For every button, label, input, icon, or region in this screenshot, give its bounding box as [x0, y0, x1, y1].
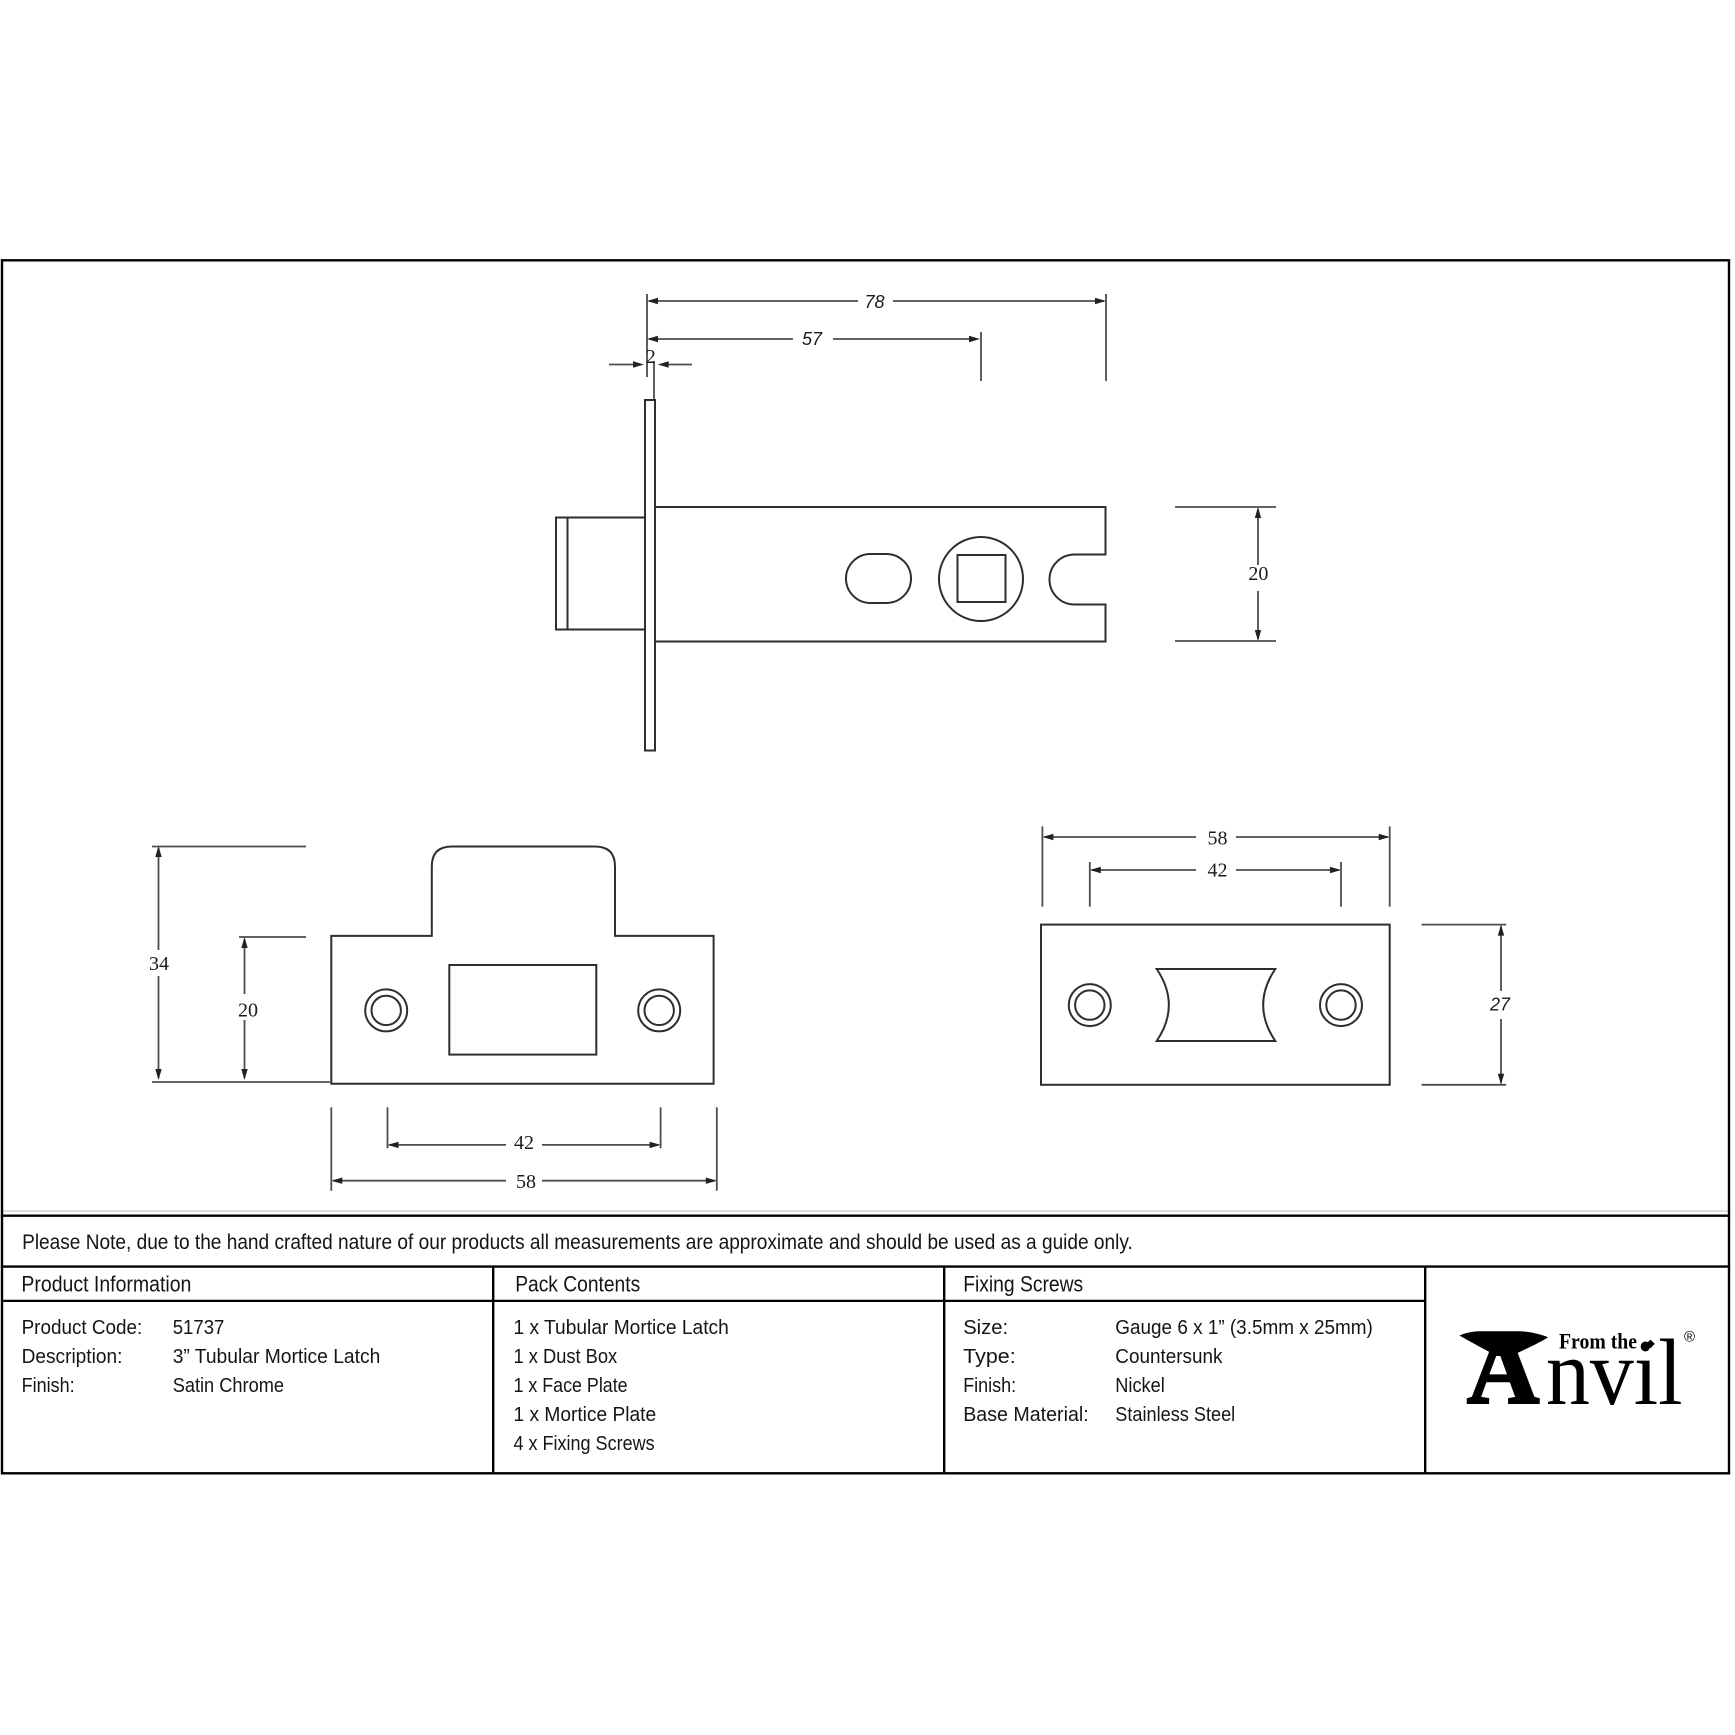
svg-text:3” Tubular Mortice Latch: 3” Tubular Mortice Latch: [173, 1345, 381, 1368]
svg-text:Product Information: Product Information: [21, 1271, 191, 1296]
svg-text:2: 2: [646, 346, 656, 368]
svg-text:42: 42: [514, 1132, 534, 1154]
svg-text:Stainless Steel: Stainless Steel: [1115, 1403, 1235, 1426]
svg-text:34: 34: [149, 953, 169, 975]
svg-text:Pack Contents: Pack Contents: [515, 1271, 640, 1296]
svg-text:A: A: [1467, 1314, 1539, 1425]
svg-text:57: 57: [802, 329, 823, 349]
svg-text:Gauge 6 x 1” (3.5mm x 25mm): Gauge 6 x 1” (3.5mm x 25mm): [1115, 1316, 1373, 1339]
svg-text:4 x Fixing Screws: 4 x Fixing Screws: [514, 1432, 655, 1455]
svg-text:1 x Face Plate: 1 x Face Plate: [514, 1374, 628, 1397]
svg-text:Type:: Type:: [963, 1345, 1016, 1368]
svg-text:®: ®: [1684, 1329, 1695, 1346]
svg-text:20: 20: [238, 1000, 258, 1022]
svg-text:Please Note, due to the hand c: Please Note, due to the hand crafted nat…: [22, 1230, 1133, 1254]
svg-text:Satin Chrome: Satin Chrome: [173, 1374, 284, 1397]
svg-text:78: 78: [864, 292, 884, 312]
svg-text:Countersunk: Countersunk: [1115, 1345, 1223, 1368]
svg-text:Fixing Screws: Fixing Screws: [963, 1271, 1083, 1296]
svg-text:1 x Mortice Plate: 1 x Mortice Plate: [514, 1403, 657, 1426]
svg-text:42: 42: [1208, 859, 1228, 881]
svg-text:Product Code:: Product Code:: [22, 1316, 143, 1339]
svg-text:Finish:: Finish:: [963, 1374, 1016, 1397]
svg-text:27: 27: [1489, 994, 1511, 1014]
svg-text:Finish:: Finish:: [22, 1374, 75, 1397]
svg-text:Description:: Description:: [22, 1345, 123, 1368]
svg-text:58: 58: [516, 1171, 536, 1193]
svg-text:Base Material:: Base Material:: [963, 1403, 1088, 1426]
svg-text:51737: 51737: [173, 1316, 225, 1339]
svg-text:1 x Dust Box: 1 x Dust Box: [514, 1345, 618, 1368]
svg-text:1 x Tubular Mortice Latch: 1 x Tubular Mortice Latch: [514, 1316, 729, 1339]
svg-text:From the: From the: [1559, 1329, 1637, 1354]
svg-text:Size:: Size:: [963, 1316, 1008, 1339]
svg-text:Nickel: Nickel: [1115, 1374, 1165, 1397]
svg-text:20: 20: [1248, 563, 1268, 585]
svg-text:58: 58: [1208, 828, 1228, 850]
